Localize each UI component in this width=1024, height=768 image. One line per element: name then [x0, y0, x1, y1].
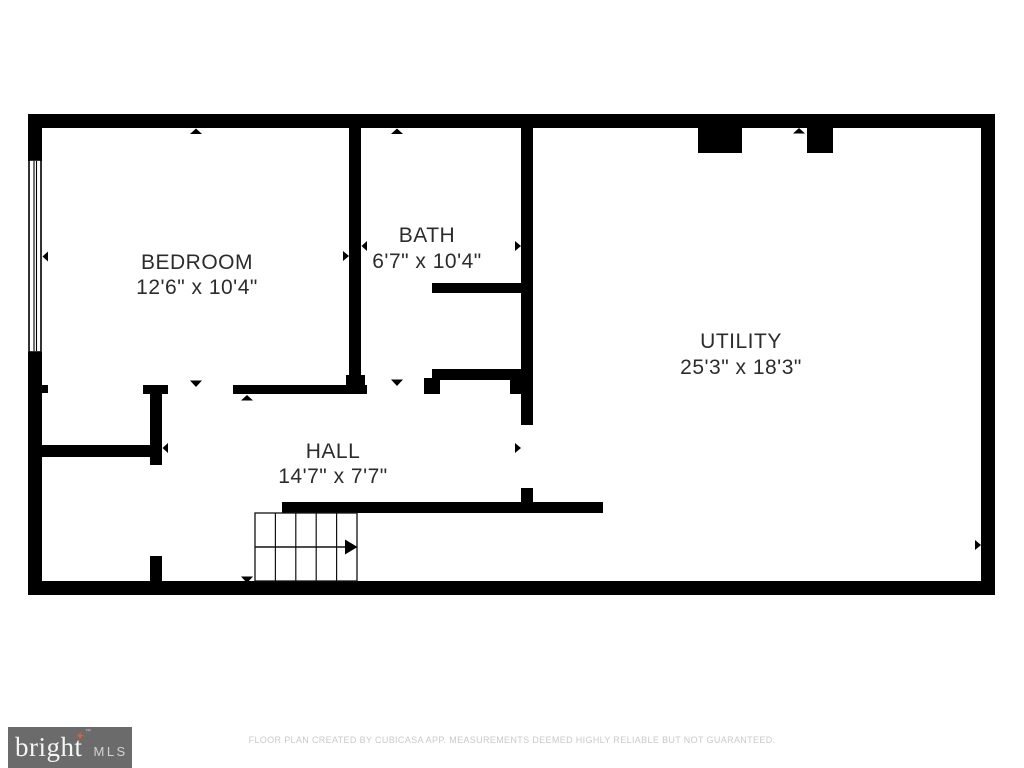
bright-mls-logo: bright ✦ ™ MLS — [8, 727, 132, 768]
exterior-walls — [28, 114, 995, 595]
wall-above-stairs — [282, 502, 603, 513]
wall-bottom — [28, 581, 995, 595]
wall-bath-door-stub-left — [424, 378, 440, 394]
wall-left-lower — [28, 352, 42, 595]
wall-utility-stub-a — [698, 128, 742, 153]
marker-right-icon — [975, 540, 981, 550]
interior-walls — [28, 128, 833, 581]
marker-left-icon — [163, 443, 169, 453]
wall-closet-stub — [150, 556, 162, 581]
wall-bedroom-bath-foot — [346, 375, 365, 386]
marker-up-icon — [241, 395, 253, 401]
wall-left-mini-stub — [42, 385, 48, 393]
logo-wordmark: bright ✦ ™ — [15, 727, 83, 768]
stairs — [255, 513, 358, 581]
marker-up-icon — [793, 128, 805, 134]
window-frame — [29, 160, 41, 352]
marker-right-icon — [343, 251, 349, 261]
room-label-bath: BATH — [399, 224, 455, 247]
marker-up-icon — [190, 129, 202, 135]
footer-disclaimer: FLOOR PLAN CREATED BY CUBICASA APP. MEAS… — [0, 735, 1024, 745]
marker-left-icon — [43, 252, 49, 262]
room-label-bedroom: BEDROOM — [141, 251, 253, 274]
room-dims-utility: 25'3" x 18'3" — [680, 356, 802, 379]
wall-utility-stub-b — [807, 128, 833, 153]
logo-mls-text: MLS — [94, 744, 128, 759]
marker-right-icon — [515, 443, 521, 453]
wall-left-upper — [28, 114, 42, 161]
floor-plan-page: BEDROOM 12'6" x 10'4" BATH 6'7" x 10'4" … — [0, 0, 1024, 768]
marker-up-icon — [391, 129, 403, 135]
wall-bath-utility — [521, 128, 533, 425]
wall-bath-bottom — [432, 369, 521, 380]
window-left — [29, 160, 41, 352]
wall-bath-door-stub-right — [510, 378, 522, 394]
wall-closet-horizontal — [28, 445, 150, 457]
wall-right — [981, 114, 995, 595]
room-label-hall: HALL — [306, 440, 361, 463]
floor-plan-drawing: BEDROOM 12'6" x 10'4" BATH 6'7" x 10'4" … — [0, 0, 1024, 768]
marker-down-icon — [190, 381, 202, 388]
wall-closet-cap — [143, 385, 168, 394]
wall-bath-partition — [432, 283, 522, 293]
wall-bedroom-bath — [349, 128, 361, 378]
wall-top — [28, 114, 995, 128]
marker-right-icon — [515, 241, 521, 251]
wall-bedroom-bottom — [233, 385, 367, 394]
room-dims-hall: 14'7" x 7'7" — [278, 465, 388, 488]
marker-down-icon — [391, 380, 403, 387]
room-dims-bath: 6'7" x 10'4" — [372, 250, 482, 273]
wall-closet-stem — [150, 394, 162, 465]
door-markers — [43, 128, 982, 583]
marker-left-icon — [362, 241, 368, 251]
room-dims-bedroom: 12'6" x 10'4" — [136, 276, 258, 299]
room-label-utility: UTILITY — [700, 330, 782, 353]
room-labels: BEDROOM 12'6" x 10'4" BATH 6'7" x 10'4" … — [136, 224, 802, 488]
